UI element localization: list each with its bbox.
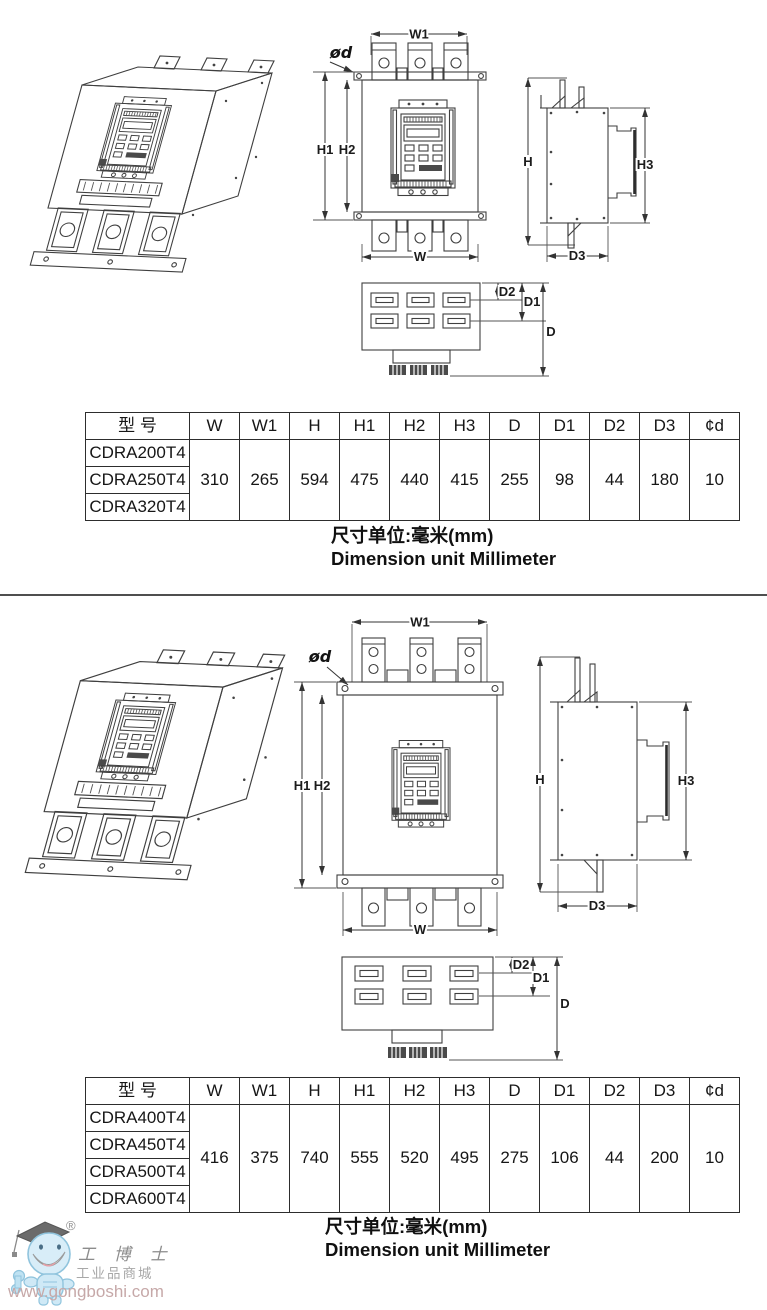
dim-label-h3-2: H3 [678, 773, 695, 788]
value-cell: 98 [540, 440, 590, 521]
header-cell: ¢d [690, 413, 740, 440]
model-cell: CDRA450T4 [86, 1132, 190, 1159]
value-cell: 740 [290, 1105, 340, 1213]
header-cell: D2 [590, 413, 640, 440]
header-cell: ¢d [690, 1078, 740, 1105]
registered-mark: ® [66, 1218, 76, 1233]
dim-label-w-1: W [414, 249, 427, 264]
model-cell: CDRA320T4 [86, 494, 190, 521]
header-cell: H [290, 413, 340, 440]
value-cell: 265 [240, 440, 290, 521]
value-cell: 44 [590, 440, 640, 521]
header-cell: H [290, 1078, 340, 1105]
dim-label-w-2: W [414, 922, 427, 937]
header-cell: D [490, 1078, 540, 1105]
header-cell: D1 [540, 413, 590, 440]
dim-label-d-2: D [560, 996, 569, 1011]
dim-label-h2-1: H2 [339, 142, 356, 157]
table-header-row: 型 号 W W1 H H1 H2 H3 D D1 D2 D3 ¢d [86, 1078, 740, 1105]
dim-label-phid-2: ød [308, 647, 332, 666]
dim-label-d-1: D [546, 324, 555, 339]
bottom-view-2 [342, 957, 563, 1060]
value-cell: 440 [390, 440, 440, 521]
dim-label-d2-2: D2 [513, 957, 530, 972]
dim-label-d3-1: D3 [569, 248, 586, 263]
dim-label-w1-2: W1 [410, 615, 430, 630]
value-cell: 415 [440, 440, 490, 521]
model-cell: CDRA600T4 [86, 1186, 190, 1213]
watermark-subtitle: 工业品商城 [76, 1262, 154, 1282]
dimension-table-2: 型 号 W W1 H H1 H2 H3 D D1 D2 D3 ¢d CDRA40… [85, 1077, 740, 1213]
dimension-unit-caption-1: 尺寸单位:毫米(mm) Dimension unit Millimeter [331, 524, 556, 570]
dim-label-phid-1: ød [329, 43, 353, 62]
value-cell: 310 [190, 440, 240, 521]
header-cell-model: 型 号 [86, 413, 190, 440]
model-cell: CDRA500T4 [86, 1159, 190, 1186]
value-cell: 495 [440, 1105, 490, 1213]
header-cell: H1 [340, 413, 390, 440]
header-cell: D1 [540, 1078, 590, 1105]
model-cell: CDRA250T4 [86, 467, 190, 494]
dim-label-d1-1: D1 [524, 294, 541, 309]
value-cell: 106 [540, 1105, 590, 1213]
value-cell: 10 [690, 1105, 740, 1213]
side-view-1 [528, 78, 650, 262]
header-cell: H3 [440, 1078, 490, 1105]
value-cell: 375 [240, 1105, 290, 1213]
dim-label-h-2: H [535, 772, 544, 787]
header-cell: W1 [240, 413, 290, 440]
dimension-unit-caption-2: 尺寸单位:毫米(mm) Dimension unit Millimeter [325, 1215, 550, 1261]
header-cell: H2 [390, 1078, 440, 1105]
dim-label-h1-2: H1 [294, 778, 311, 793]
header-cell: W [190, 413, 240, 440]
header-cell-model: 型 号 [86, 1078, 190, 1105]
datasheet-page: ød W1 H1 H2 W H H3 D3 D2 D1 D [0, 0, 767, 1310]
value-cell: 416 [190, 1105, 240, 1213]
header-cell: D3 [640, 1078, 690, 1105]
caption-cn: 尺寸单位:毫米(mm) [331, 524, 556, 547]
header-cell: H3 [440, 413, 490, 440]
dim-label-h1-1: H1 [317, 142, 334, 157]
table-row: CDRA400T4 416 375 740 555 520 495 275 10… [86, 1105, 740, 1132]
value-cell: 10 [690, 440, 740, 521]
dim-label-w1-1: W1 [409, 27, 429, 42]
header-cell: D3 [640, 413, 690, 440]
dim-label-d1-2: D1 [533, 970, 550, 985]
iso-view-1 [30, 56, 274, 272]
caption-en: Dimension unit Millimeter [325, 1238, 550, 1261]
value-cell: 555 [340, 1105, 390, 1213]
header-cell: W1 [240, 1078, 290, 1105]
table-header-row: 型 号 W W1 H H1 H2 H3 D D1 D2 D3 ¢d [86, 413, 740, 440]
value-cell: 44 [590, 1105, 640, 1213]
bottom-view-1 [362, 283, 549, 376]
dim-label-h2-2: H2 [314, 778, 331, 793]
dim-label-h3-1: H3 [637, 157, 654, 172]
caption-en: Dimension unit Millimeter [331, 547, 556, 570]
table-row: CDRA200T4 310 265 594 475 440 415 255 98… [86, 440, 740, 467]
header-cell: D2 [590, 1078, 640, 1105]
header-cell: H1 [340, 1078, 390, 1105]
value-cell: 180 [640, 440, 690, 521]
header-cell: H2 [390, 413, 440, 440]
header-cell: D [490, 413, 540, 440]
dim-label-h-1: H [523, 154, 532, 169]
value-cell: 200 [640, 1105, 690, 1213]
value-cell: 594 [290, 440, 340, 521]
value-cell: 475 [340, 440, 390, 521]
value-cell: 255 [490, 440, 540, 521]
gongboshi-watermark: ® 工 博 士 工业品商城 www.gongboshi.com [2, 1210, 232, 1308]
dim-label-d2-1: D2 [499, 284, 516, 299]
dim-label-d3-2: D3 [589, 898, 606, 913]
model-cell: CDRA400T4 [86, 1105, 190, 1132]
header-cell: W [190, 1078, 240, 1105]
value-cell: 275 [490, 1105, 540, 1213]
dimension-table-1: 型 号 W W1 H H1 H2 H3 D D1 D2 D3 ¢d CDRA20… [85, 412, 740, 521]
value-cell: 520 [390, 1105, 440, 1213]
iso-view-2 [25, 650, 284, 880]
model-cell: CDRA200T4 [86, 440, 190, 467]
side-view-2 [540, 657, 692, 912]
caption-cn: 尺寸单位:毫米(mm) [325, 1215, 550, 1238]
watermark-url: www.gongboshi.com [8, 1282, 164, 1302]
